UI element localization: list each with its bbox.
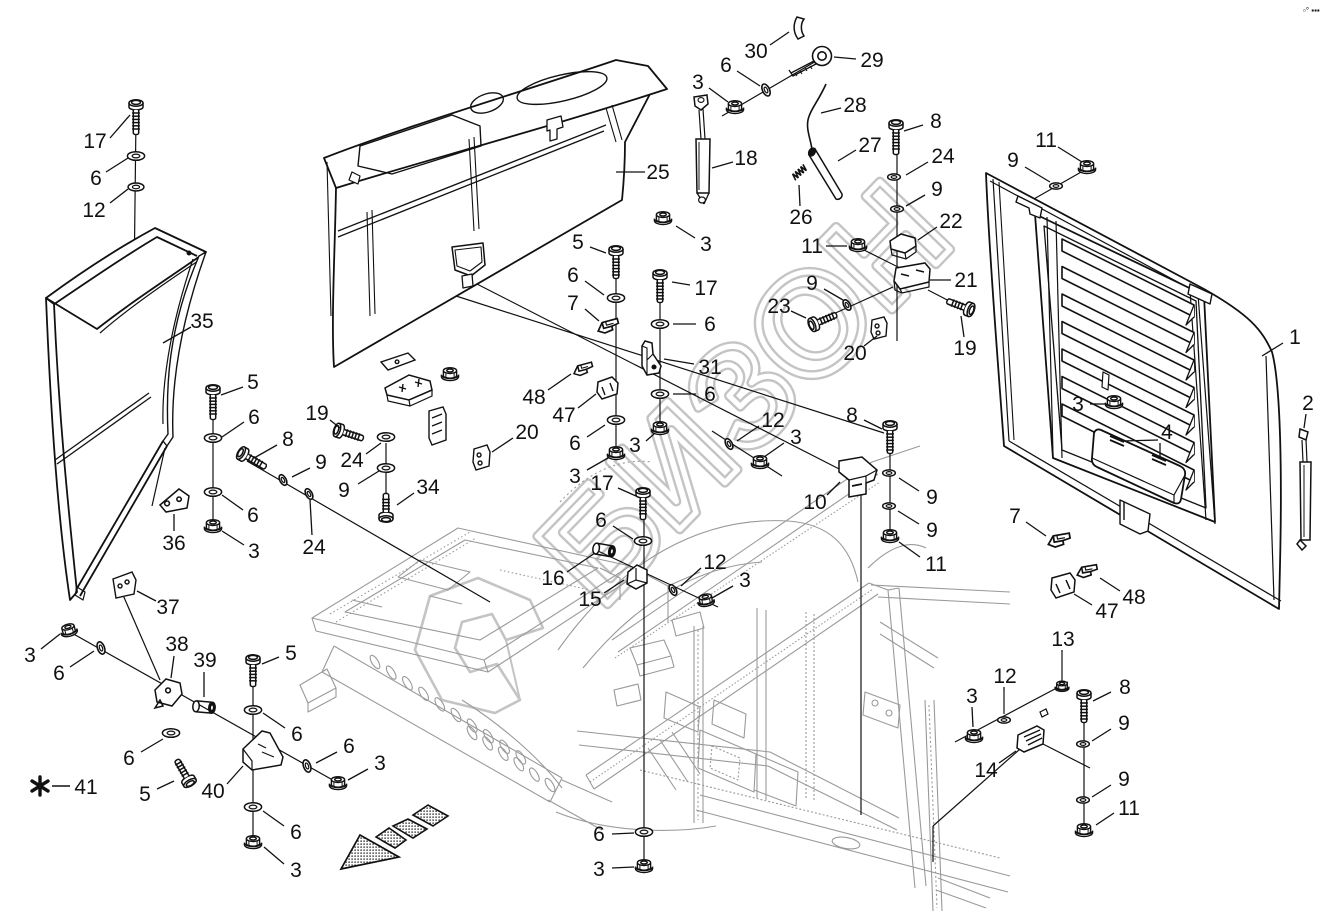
svg-text:5: 5 xyxy=(139,783,151,806)
svg-text:6: 6 xyxy=(704,313,716,336)
svg-text:9: 9 xyxy=(1118,712,1130,735)
svg-text:6: 6 xyxy=(343,735,355,758)
svg-text:11: 11 xyxy=(925,553,947,576)
svg-text:6: 6 xyxy=(291,723,303,746)
svg-text:17: 17 xyxy=(590,472,613,495)
svg-text:9: 9 xyxy=(1118,768,1130,791)
svg-text:25: 25 xyxy=(646,161,669,184)
svg-text:12: 12 xyxy=(761,409,784,432)
svg-text:6: 6 xyxy=(90,167,102,190)
svg-text:6: 6 xyxy=(247,504,259,527)
svg-text:3: 3 xyxy=(700,233,712,256)
svg-text:20: 20 xyxy=(515,421,538,444)
svg-text:3: 3 xyxy=(593,858,605,881)
svg-text:3: 3 xyxy=(24,644,36,667)
svg-text:6: 6 xyxy=(567,264,579,287)
svg-text:6: 6 xyxy=(53,662,65,685)
svg-text:9: 9 xyxy=(806,272,818,295)
svg-text:6: 6 xyxy=(720,54,732,77)
svg-text:3: 3 xyxy=(248,540,260,563)
svg-text:3: 3 xyxy=(966,685,978,708)
svg-text:8: 8 xyxy=(846,404,858,427)
svg-text:8: 8 xyxy=(930,110,942,133)
svg-text:29: 29 xyxy=(860,49,883,72)
svg-text:13: 13 xyxy=(1051,628,1074,651)
svg-text:31: 31 xyxy=(698,356,721,379)
svg-text:48: 48 xyxy=(522,386,545,409)
svg-text:39: 39 xyxy=(193,649,216,672)
svg-text:9: 9 xyxy=(1007,149,1019,172)
svg-text:30: 30 xyxy=(744,40,767,63)
svg-text:14: 14 xyxy=(974,759,998,782)
svg-text:9: 9 xyxy=(926,486,938,509)
svg-text:41: 41 xyxy=(74,776,97,799)
svg-text:12: 12 xyxy=(703,551,726,574)
svg-text:6: 6 xyxy=(290,821,302,844)
svg-text:38: 38 xyxy=(165,633,188,656)
svg-text:19: 19 xyxy=(305,402,328,425)
svg-text:47: 47 xyxy=(1095,600,1118,623)
svg-text:20: 20 xyxy=(843,342,866,365)
svg-text:3: 3 xyxy=(692,71,704,94)
svg-text:6: 6 xyxy=(704,383,716,406)
svg-text:27: 27 xyxy=(858,134,881,157)
svg-text:17: 17 xyxy=(694,277,717,300)
svg-text:6: 6 xyxy=(593,823,605,846)
svg-text:24: 24 xyxy=(340,449,364,472)
svg-text:24: 24 xyxy=(302,536,326,559)
svg-text:19: 19 xyxy=(953,337,976,360)
svg-text:1: 1 xyxy=(1289,326,1301,349)
svg-text:15: 15 xyxy=(578,588,601,611)
svg-text:23: 23 xyxy=(767,295,790,318)
svg-text:9: 9 xyxy=(315,451,327,474)
svg-text:3: 3 xyxy=(1072,393,1084,416)
svg-text:2: 2 xyxy=(1302,392,1314,415)
svg-text:22: 22 xyxy=(939,210,962,233)
svg-text:17: 17 xyxy=(83,130,106,153)
svg-text:3: 3 xyxy=(569,465,581,488)
svg-text:5: 5 xyxy=(247,371,259,394)
svg-text:5: 5 xyxy=(572,231,584,254)
svg-text:8: 8 xyxy=(1119,676,1131,699)
svg-text:6: 6 xyxy=(123,747,135,770)
svg-text:26: 26 xyxy=(789,206,812,229)
svg-text:36: 36 xyxy=(162,532,185,555)
svg-text:▫° ▪▪▪: ▫° ▪▪▪ xyxy=(1303,6,1320,15)
svg-text:6: 6 xyxy=(248,406,260,429)
svg-text:40: 40 xyxy=(201,780,224,803)
svg-text:3: 3 xyxy=(629,434,641,457)
svg-text:4: 4 xyxy=(1161,421,1173,444)
svg-text:16: 16 xyxy=(541,567,564,590)
svg-text:6: 6 xyxy=(595,509,607,532)
svg-text:9: 9 xyxy=(926,519,938,542)
svg-text:5: 5 xyxy=(285,642,297,665)
svg-text:18: 18 xyxy=(734,147,757,170)
svg-text:21: 21 xyxy=(954,269,977,292)
svg-text:24: 24 xyxy=(931,145,955,168)
svg-text:9: 9 xyxy=(338,479,350,502)
svg-text:7: 7 xyxy=(567,292,579,315)
svg-text:3: 3 xyxy=(790,426,802,449)
svg-text:34: 34 xyxy=(416,476,440,499)
svg-text:11: 11 xyxy=(1035,129,1057,152)
svg-text:6: 6 xyxy=(569,432,581,455)
svg-text:3: 3 xyxy=(739,569,751,592)
svg-text:48: 48 xyxy=(1122,586,1145,609)
svg-text:3: 3 xyxy=(290,859,302,882)
svg-text:12: 12 xyxy=(993,665,1016,688)
svg-text:47: 47 xyxy=(552,404,575,427)
svg-text:3: 3 xyxy=(374,752,386,775)
svg-text:8: 8 xyxy=(282,428,294,451)
svg-text:28: 28 xyxy=(843,94,866,117)
svg-text:11: 11 xyxy=(1118,797,1140,820)
svg-text:7: 7 xyxy=(1009,505,1021,528)
svg-text:35: 35 xyxy=(190,310,213,333)
svg-text:12: 12 xyxy=(82,199,105,222)
svg-text:9: 9 xyxy=(931,178,943,201)
svg-text:37: 37 xyxy=(156,596,179,619)
svg-text:10: 10 xyxy=(803,491,826,514)
svg-text:11: 11 xyxy=(801,235,823,258)
